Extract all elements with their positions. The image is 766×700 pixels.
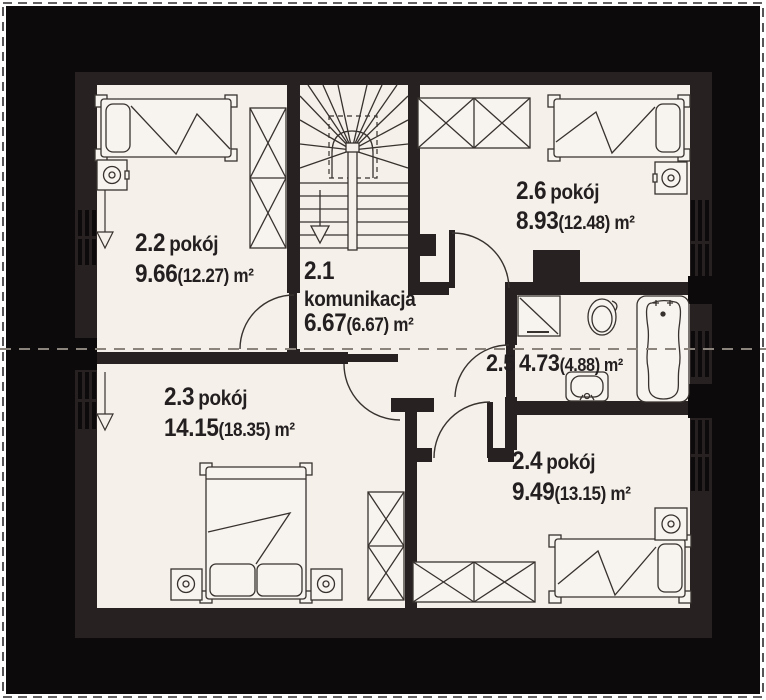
bed-2-3 <box>200 463 312 603</box>
room-label-2-5: 2.5 4.73(4.88) m² <box>486 352 623 376</box>
stair-spine-wall <box>348 148 357 250</box>
window-right-bath <box>691 331 709 377</box>
door-leaf-2-2 <box>289 293 297 349</box>
wall-bath-west <box>505 295 517 345</box>
wall-2-2-stairs <box>287 85 300 293</box>
bed-2-2 <box>95 95 237 161</box>
toilet <box>588 299 617 335</box>
room-label-2-4-area: 9.49(13.15) m² <box>512 480 631 505</box>
washbasin <box>566 372 608 401</box>
room-label-2-2-title: 2.2 pokój <box>135 231 218 256</box>
door-leaf-2-3 <box>348 354 398 362</box>
floor-plan-drawing <box>0 0 766 700</box>
wardrobe-2-2 <box>250 108 286 248</box>
nightstand-2-2 <box>97 160 129 190</box>
bath-drain <box>661 312 665 316</box>
bed-2-4 <box>549 535 691 603</box>
door-leaf-2-4 <box>487 402 493 458</box>
room-label-2-1-area: 6.67(6.67) m² <box>304 311 413 336</box>
room-label-2-2-area: 9.66(12.27) m² <box>135 262 254 287</box>
pillow <box>106 104 130 152</box>
room-label-2-1-number: 2.1 <box>304 259 334 284</box>
pillow <box>656 104 680 152</box>
nightstand-2-6 <box>653 162 687 194</box>
nightstand-2-4 <box>655 508 687 540</box>
pillow <box>210 564 255 596</box>
pillow <box>658 544 682 592</box>
bathtub <box>637 296 689 402</box>
pillow <box>257 564 302 596</box>
wall-2-2-2-3 <box>75 352 348 364</box>
wardrobe-2-4 <box>413 562 535 602</box>
door-leaf-2-6 <box>449 230 455 288</box>
duct-block <box>420 234 436 256</box>
room-label-2-1-name: komunikacja <box>304 289 416 310</box>
room-label-2-3-title: 2.3 pokój <box>164 385 247 410</box>
room-label-2-6-area: 8.93(12.48) m² <box>516 209 635 234</box>
stair-newel <box>346 143 359 152</box>
nightstand-2-3-left <box>171 569 202 600</box>
room-label-2-3-area: 14.15(18.35) m² <box>164 416 295 441</box>
room-label-2-6-title: 2.6 pokój <box>516 179 599 204</box>
bed-2-6 <box>548 95 690 161</box>
wall-bath-south <box>505 401 688 415</box>
chimney-block <box>533 250 580 282</box>
nightstand-2-3-right <box>311 569 342 600</box>
wall-bath-north <box>505 282 688 295</box>
wardrobe-2-6 <box>418 98 530 148</box>
shower <box>518 296 560 336</box>
room-label-2-4-title: 2.4 pokój <box>512 449 595 474</box>
wardrobe-2-3 <box>368 492 404 600</box>
floor-plan: 2.2 pokój 9.66(12.27) m² 2.1 komunikacja… <box>0 0 766 700</box>
